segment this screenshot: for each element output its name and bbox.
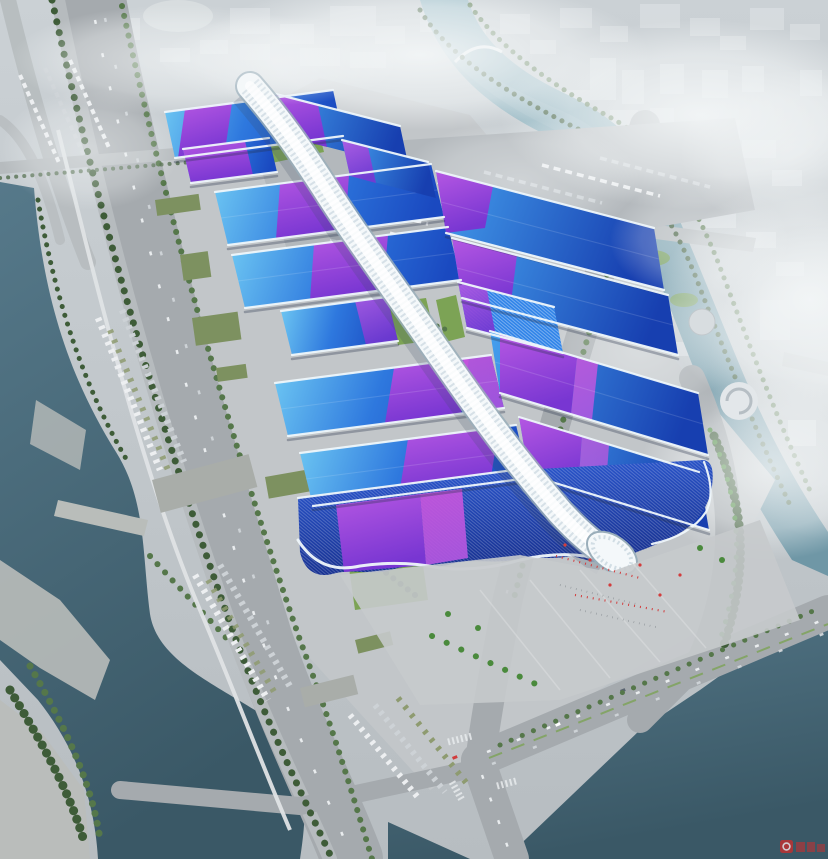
spiral-building [720,382,758,420]
aerial-rendering [0,0,828,859]
aerial-rendering-stage [0,0,828,859]
round-pavilion [689,309,715,335]
